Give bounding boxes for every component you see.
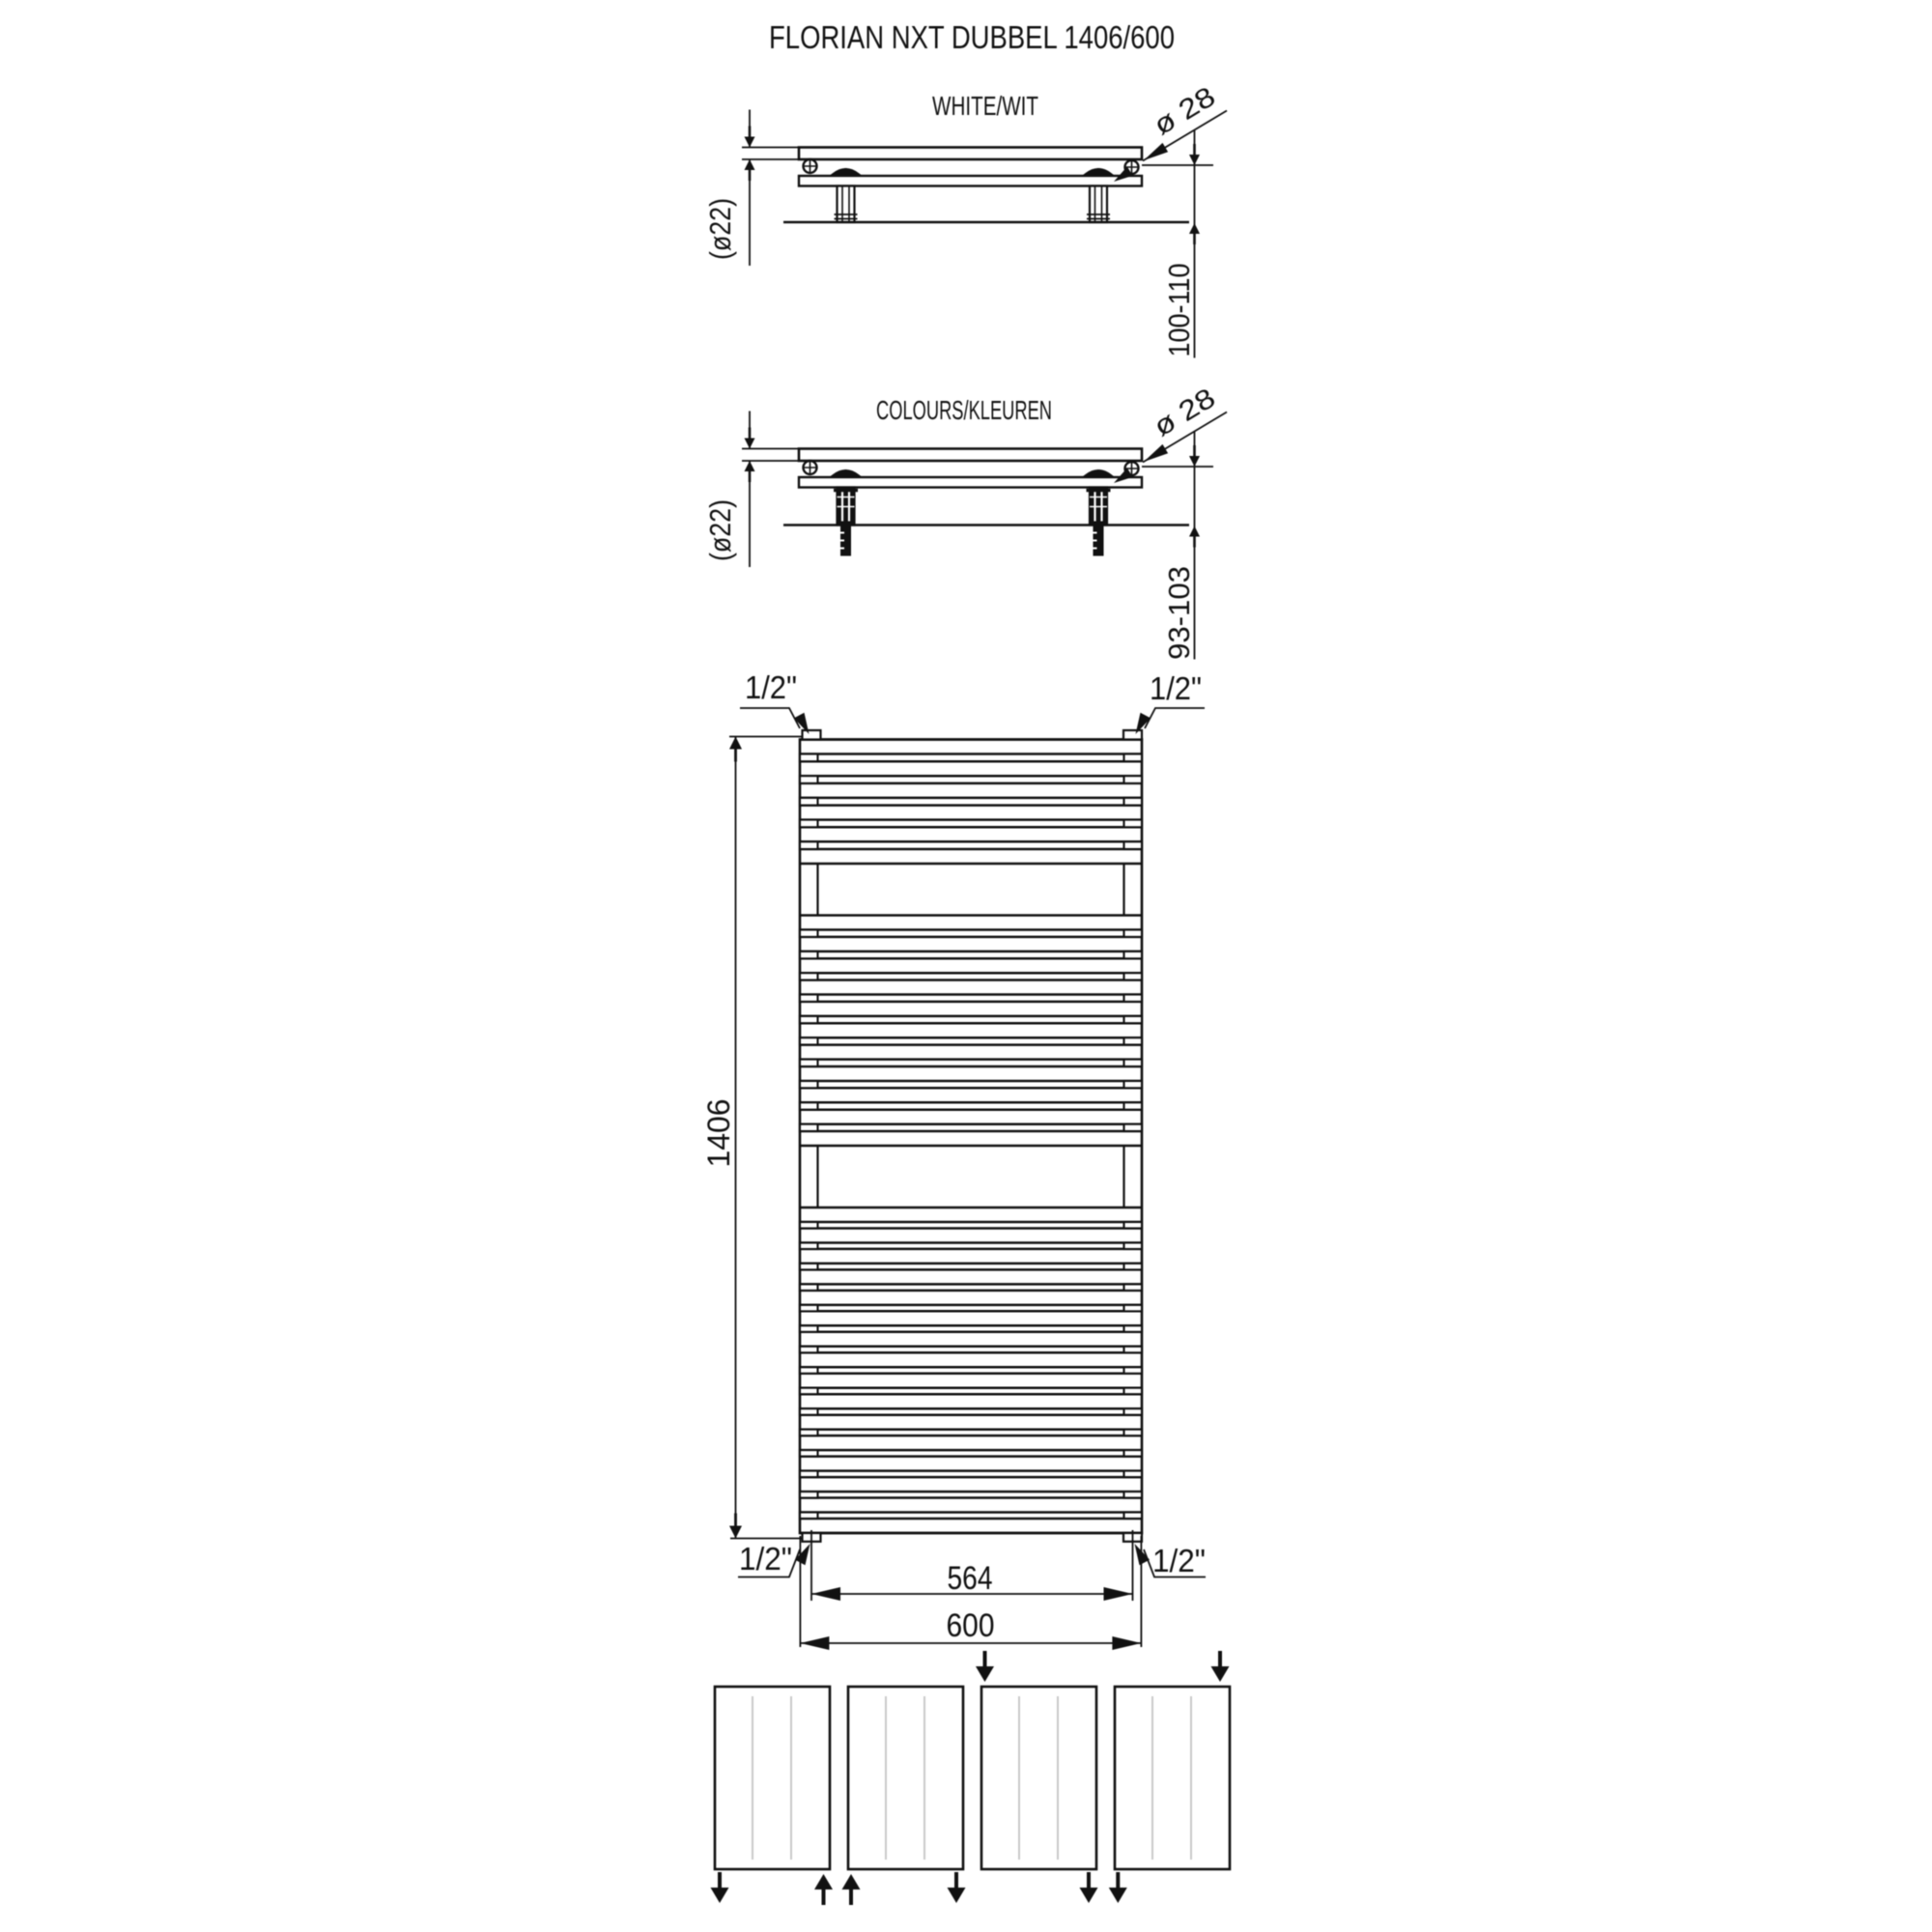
svg-text:COLOURS/KLEUREN: COLOURS/KLEUREN xyxy=(876,395,1052,425)
svg-text:1/2": 1/2" xyxy=(745,669,797,705)
svg-text:1/2": 1/2" xyxy=(1150,670,1202,706)
svg-text:1/2": 1/2" xyxy=(739,1541,792,1577)
svg-text:600: 600 xyxy=(947,1607,995,1644)
svg-text:WHITE/WIT: WHITE/WIT xyxy=(932,91,1038,121)
svg-text:(ø22): (ø22) xyxy=(703,198,737,260)
svg-text:FLORIAN NXT DUBBEL 1406/600: FLORIAN NXT DUBBEL 1406/600 xyxy=(769,19,1175,55)
svg-text:100-110: 100-110 xyxy=(1162,264,1196,357)
svg-text:1/2": 1/2" xyxy=(1152,1543,1206,1578)
svg-text:93-103: 93-103 xyxy=(1162,566,1196,660)
svg-text:(ø22): (ø22) xyxy=(703,499,737,561)
svg-text:564: 564 xyxy=(948,1560,993,1597)
svg-text:1406: 1406 xyxy=(701,1099,736,1168)
